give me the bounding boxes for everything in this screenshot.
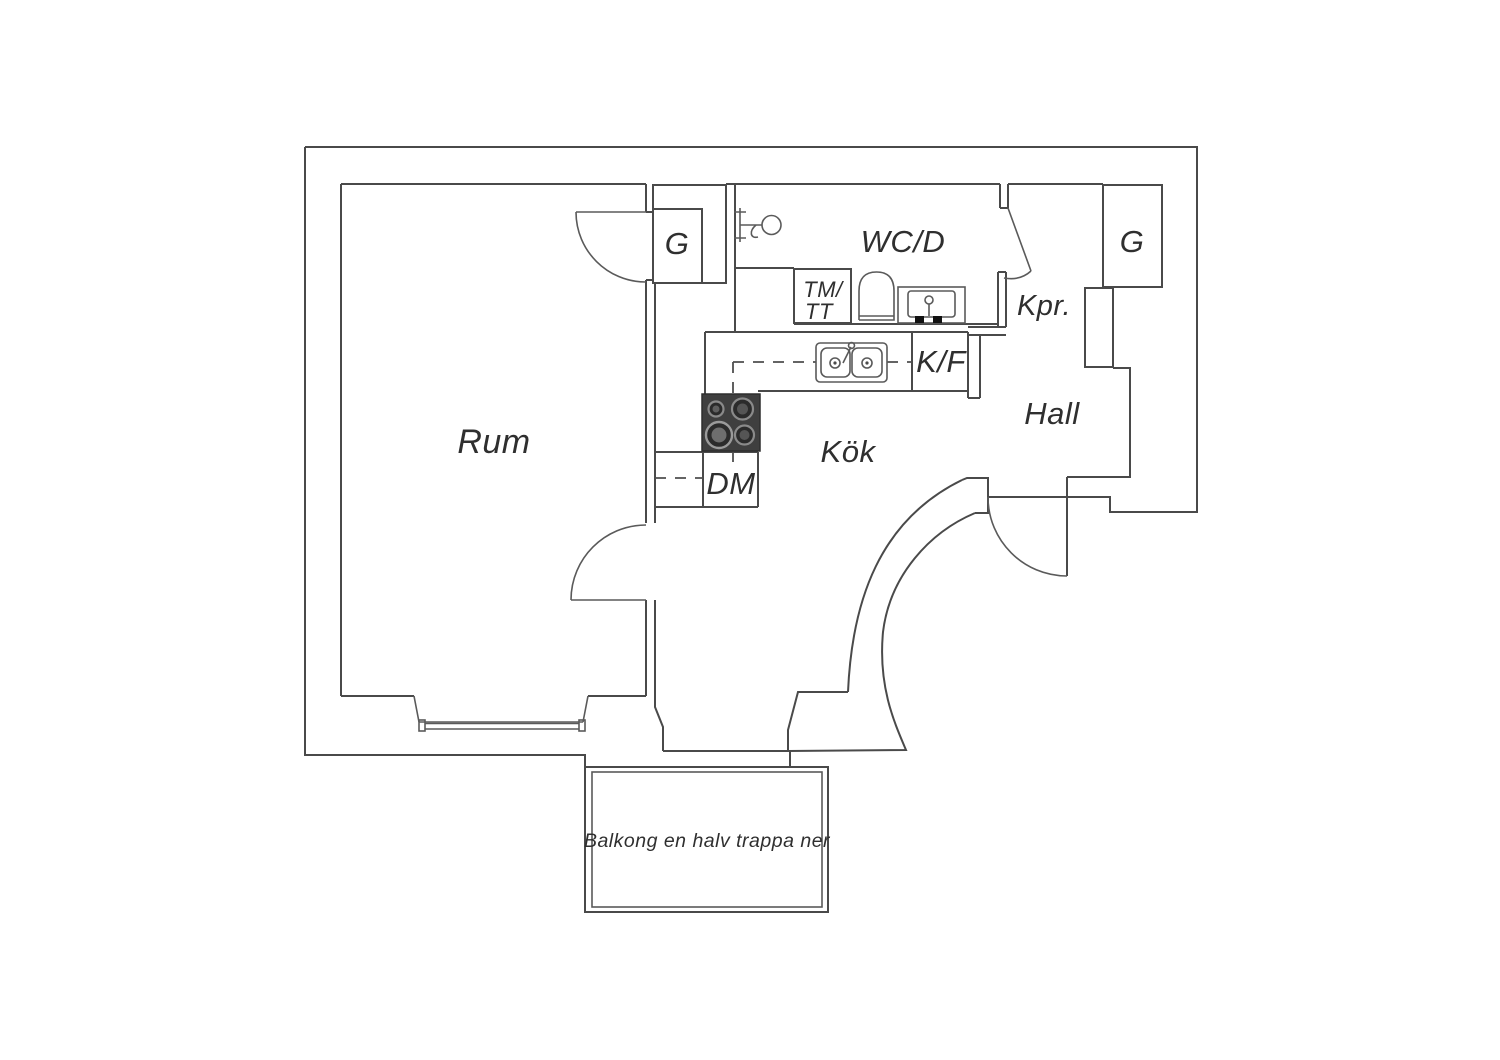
room-label-rum: Rum — [457, 423, 530, 461]
curved-wall-hall-face — [788, 513, 975, 751]
room-label-hall: Hall — [1024, 396, 1080, 431]
fixture-label-dryer: TT — [805, 299, 834, 324]
closet-label-left: G — [665, 226, 690, 261]
toilet-icon — [859, 272, 894, 320]
closet-label-right: G — [1120, 224, 1145, 259]
door-entrance — [988, 477, 1067, 576]
door-swing-arc — [1004, 271, 1031, 279]
exterior-walls — [305, 147, 1197, 767]
room-label-kpr: Kpr. — [1017, 290, 1071, 322]
door-swing-arc — [571, 525, 646, 600]
floor-plan: Rum Kök Hall WC/D Kpr. G G K/F DM TM/ TT… — [0, 0, 1500, 1060]
room-label-kok: Kök — [821, 434, 877, 469]
fixture-label-fridge-freezer: K/F — [916, 344, 967, 379]
duct-shaft — [1085, 288, 1113, 367]
shower-icon — [734, 208, 781, 242]
door-rum — [571, 525, 646, 600]
room-label-wcd: WC/D — [861, 224, 946, 259]
stove-icon — [702, 394, 760, 451]
door-swing-arc — [576, 212, 646, 282]
kitchen-sink-icon — [816, 343, 887, 383]
fixture-label-dishwasher: DM — [706, 466, 755, 501]
door-swing-arc — [988, 497, 1067, 576]
window-rum — [414, 696, 588, 731]
washbasin-icon — [898, 287, 965, 323]
floor-plan-page: Rum Kök Hall WC/D Kpr. G G K/F DM TM/ TT… — [0, 0, 1500, 1060]
curved-wall-kitchen-face — [848, 480, 962, 692]
balcony-note: Balkong en halv trappa ner — [584, 830, 831, 852]
door-closet-left — [576, 212, 646, 282]
door-wc — [1004, 208, 1031, 279]
